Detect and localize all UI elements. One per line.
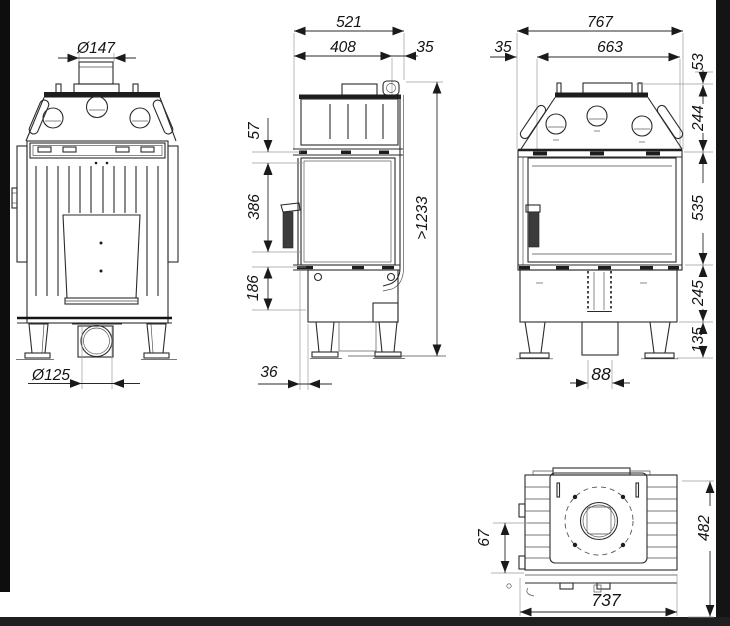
dim-front-intake-diameter: Ø125 bbox=[31, 367, 70, 384]
dim-rear-duct-width: 88 bbox=[591, 364, 611, 384]
top-view-ribs bbox=[525, 487, 677, 558]
dim-top-overall-depth: 482 bbox=[696, 515, 713, 541]
dim-side-body-depth: 408 bbox=[330, 39, 356, 56]
dim-top-rear-clearance: 67 bbox=[476, 528, 493, 547]
dim-side-base-setback: 36 bbox=[260, 364, 278, 381]
dim-side-rear-offset: 35 bbox=[416, 39, 434, 56]
dim-rear-plinth-height: 245 bbox=[690, 280, 707, 307]
fireplace-dimension-drawing: Ø147 bbox=[0, 0, 730, 626]
dim-rear-leg-height: 135 bbox=[690, 327, 707, 353]
dim-rear-glass-panel-height: 535 bbox=[690, 195, 707, 221]
dim-front-flue-diameter: Ø147 bbox=[76, 40, 116, 57]
front-view: Ø147 bbox=[12, 40, 178, 389]
side-view: 521 408 35 bbox=[245, 14, 446, 390]
rear-view: 767 663 35 bbox=[490, 14, 713, 389]
dim-side-overall-depth: 521 bbox=[336, 14, 362, 31]
dim-rear-overall-width: 767 bbox=[587, 14, 614, 31]
dim-side-frame-gap: 57 bbox=[246, 121, 263, 140]
dim-rear-hood-height: 244 bbox=[690, 105, 707, 132]
top-view: 67 482 737 bbox=[476, 468, 714, 617]
dim-side-plinth-height: 186 bbox=[245, 275, 262, 301]
dim-top-overall-width: 737 bbox=[591, 590, 621, 610]
dim-rear-collar-height: 53 bbox=[690, 53, 707, 71]
dim-side-glass-height: 386 bbox=[246, 194, 263, 220]
dim-side-min-flue-height: >1233 bbox=[414, 196, 431, 240]
technical-drawing-sheet: Ø147 bbox=[0, 0, 730, 626]
dim-rear-front-offset: 35 bbox=[494, 39, 512, 56]
dim-rear-glass-width: 663 bbox=[597, 39, 623, 56]
